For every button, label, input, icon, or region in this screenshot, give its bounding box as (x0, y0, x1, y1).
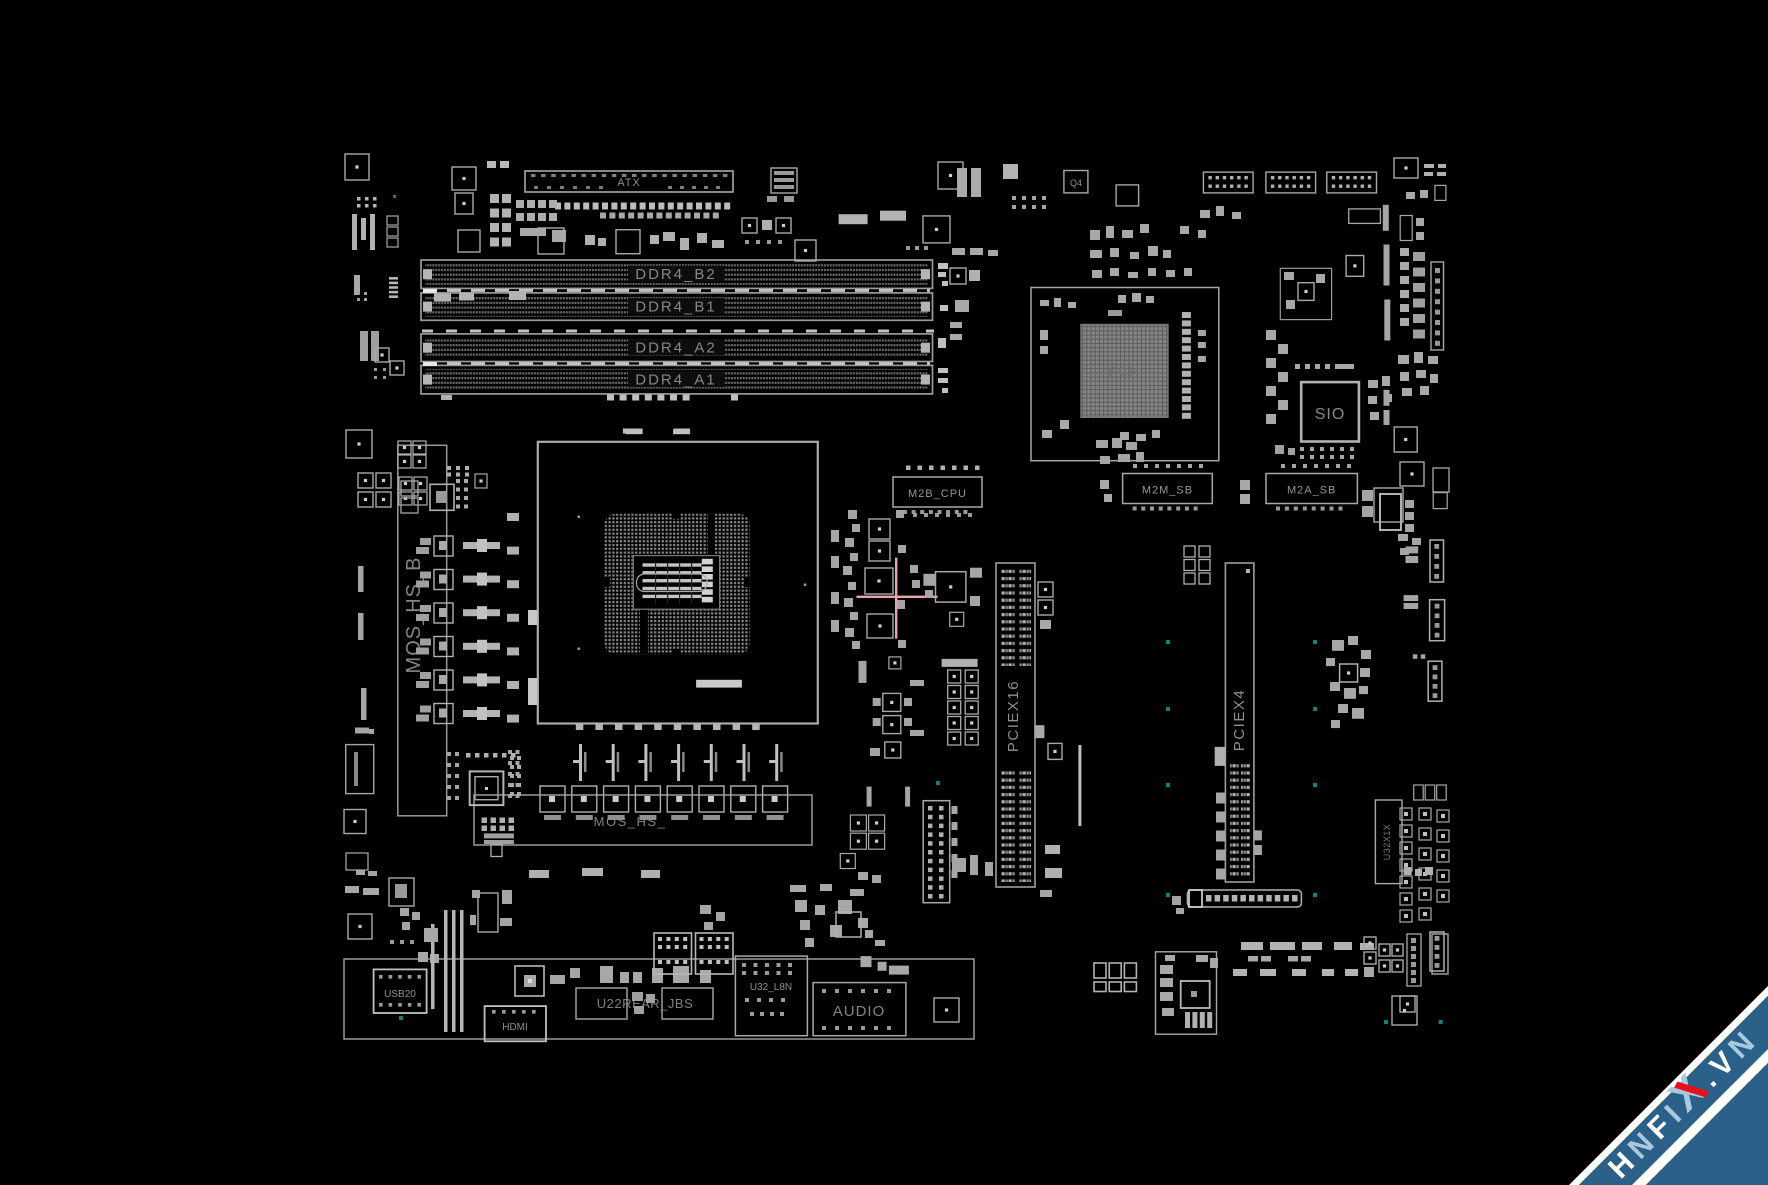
svg-text:U32X1X: U32X1X (1382, 824, 1392, 861)
svg-text:PCIEX16: PCIEX16 (1005, 680, 1022, 752)
svg-text:USB20: USB20 (384, 989, 416, 1000)
svg-text:DDR4_A2: DDR4_A2 (635, 340, 717, 357)
svg-text:M2B_CPU: M2B_CPU (908, 488, 967, 500)
svg-text:U32_L8N: U32_L8N (750, 982, 792, 993)
svg-text:AUDIO: AUDIO (833, 1003, 886, 1020)
svg-text:DDR4_A1: DDR4_A1 (635, 372, 717, 389)
svg-text:ATX: ATX (617, 177, 641, 189)
svg-text:HDMI: HDMI (502, 1022, 528, 1033)
svg-text:Q4: Q4 (1070, 178, 1082, 188)
svg-text:DDR4_B2: DDR4_B2 (635, 266, 717, 283)
svg-text:M2M_SB: M2M_SB (1142, 485, 1193, 497)
svg-text:SIO: SIO (1315, 406, 1346, 423)
svg-text:U22REAR_JBS: U22REAR_JBS (597, 996, 694, 1011)
svg-text:PCH: PCH (1109, 364, 1139, 379)
svg-text:M2A_SB: M2A_SB (1287, 485, 1336, 497)
svg-text:DDR4_B1: DDR4_B1 (635, 299, 717, 316)
svg-text:PCIEX4: PCIEX4 (1231, 689, 1248, 751)
